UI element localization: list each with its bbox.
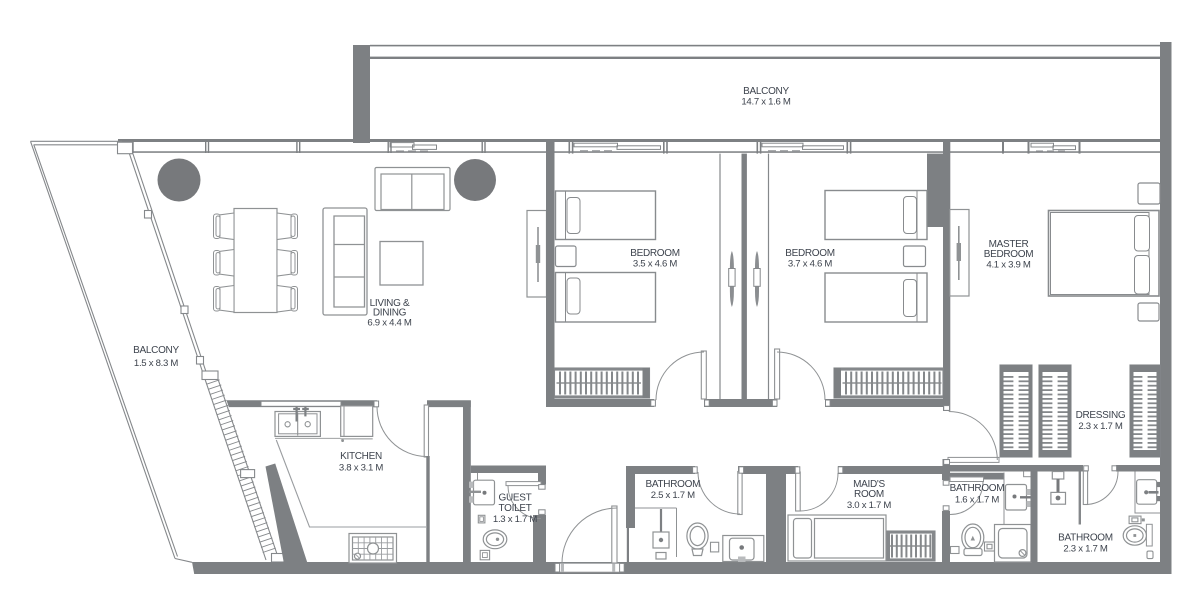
svg-text:DRESSING: DRESSING [1076, 410, 1126, 421]
svg-text:2.5 x 1.7 M: 2.5 x 1.7 M [651, 490, 695, 501]
svg-text:3.0 x 1.7 M: 3.0 x 1.7 M [847, 500, 891, 511]
svg-text:GUEST: GUEST [499, 492, 532, 503]
svg-text:3.8 x 3.1 M: 3.8 x 3.1 M [339, 462, 383, 473]
svg-text:BATHROOM: BATHROOM [1058, 533, 1113, 544]
svg-text:2.3 x 1.7 M: 2.3 x 1.7 M [1063, 544, 1107, 555]
svg-text:2.3 x 1.7 M: 2.3 x 1.7 M [1078, 421, 1122, 432]
svg-text:1.5 x 8.3 M: 1.5 x 8.3 M [134, 358, 178, 369]
svg-text:BATHROOM: BATHROOM [645, 479, 700, 490]
svg-text:BALCONY: BALCONY [743, 86, 789, 97]
svg-text:BALCONY: BALCONY [133, 345, 179, 356]
svg-text:1.3 x 1.7 M: 1.3 x 1.7 M [493, 514, 537, 525]
svg-text:4.1 x 3.9 M: 4.1 x 3.9 M [986, 259, 1030, 270]
svg-text:KITCHEN: KITCHEN [340, 451, 382, 462]
svg-text:ROOM: ROOM [854, 489, 884, 500]
svg-text:3.5 x 4.6 M: 3.5 x 4.6 M [633, 259, 677, 270]
svg-text:6.9 x 4.4 M: 6.9 x 4.4 M [367, 318, 411, 329]
svg-text:BEDROOM: BEDROOM [630, 248, 680, 259]
svg-text:3.7 x 4.6 M: 3.7 x 4.6 M [788, 259, 832, 270]
svg-text:1.6 x 1.7 M: 1.6 x 1.7 M [955, 495, 999, 506]
svg-text:BEDROOM: BEDROOM [785, 248, 835, 259]
svg-text:BATHROOM: BATHROOM [950, 483, 1005, 494]
svg-text:14.7 x 1.6 M: 14.7 x 1.6 M [741, 97, 791, 108]
svg-text:TOILET: TOILET [498, 503, 531, 514]
